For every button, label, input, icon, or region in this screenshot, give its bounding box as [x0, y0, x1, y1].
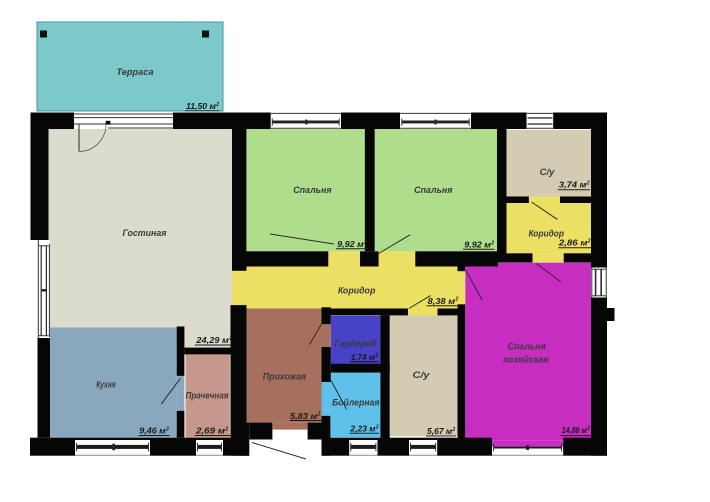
svg-text:11,50 м: 11,50 м — [186, 101, 217, 111]
svg-text:5,83 м: 5,83 м — [290, 411, 318, 421]
svg-text:2: 2 — [586, 180, 590, 186]
svg-text:9,46 м: 9,46 м — [139, 426, 166, 436]
svg-text:Терраса: Терраса — [117, 67, 155, 78]
svg-text:24,29 м: 24,29 м — [195, 335, 229, 345]
svg-text:5,67 м: 5,67 м — [427, 426, 453, 436]
svg-text:9,92 м: 9,92 м — [464, 240, 491, 250]
svg-text:Спальня: Спальня — [414, 185, 453, 196]
svg-text:Гардероб: Гардероб — [335, 339, 378, 350]
svg-text:Спальня: Спальня — [293, 185, 332, 196]
svg-text:2: 2 — [455, 297, 459, 303]
svg-text:Кухня: Кухня — [96, 380, 116, 391]
svg-text:Бойлерная: Бойлерная — [332, 398, 380, 409]
svg-text:2: 2 — [363, 240, 367, 246]
svg-text:2: 2 — [374, 353, 378, 359]
svg-text:8,38 м: 8,38 м — [428, 296, 456, 306]
svg-text:2,86 м: 2,86 м — [558, 238, 589, 248]
svg-text:2: 2 — [165, 426, 169, 432]
svg-text:Прихожая: Прихожая — [263, 372, 307, 383]
svg-text:Гостиная: Гостиная — [123, 228, 167, 239]
svg-text:2: 2 — [215, 102, 219, 108]
svg-text:2: 2 — [490, 240, 494, 246]
svg-text:2,69 м: 2,69 м — [195, 426, 226, 436]
svg-text:хозяйская: хозяйская — [502, 355, 549, 366]
svg-text:2: 2 — [452, 427, 456, 433]
svg-text:2: 2 — [586, 426, 590, 432]
svg-text:2: 2 — [317, 412, 321, 418]
svg-text:Спальня: Спальня — [507, 342, 546, 353]
svg-text:Коридор: Коридор — [338, 286, 376, 297]
svg-text:2,23 м: 2,23 м — [349, 424, 376, 434]
svg-text:2: 2 — [228, 336, 232, 342]
svg-text:2: 2 — [375, 424, 379, 430]
svg-text:Прачечная: Прачечная — [186, 390, 229, 401]
svg-text:2: 2 — [224, 426, 228, 432]
svg-text:2: 2 — [587, 238, 591, 244]
svg-text:С/у: С/у — [413, 370, 431, 381]
svg-text:1,74 м: 1,74 м — [351, 352, 376, 362]
svg-text:14,88 м: 14,88 м — [562, 425, 588, 435]
svg-text:С/у: С/у — [540, 167, 555, 178]
svg-text:9,92 м: 9,92 м — [337, 239, 364, 249]
svg-text:3,74 м: 3,74 м — [559, 180, 587, 190]
